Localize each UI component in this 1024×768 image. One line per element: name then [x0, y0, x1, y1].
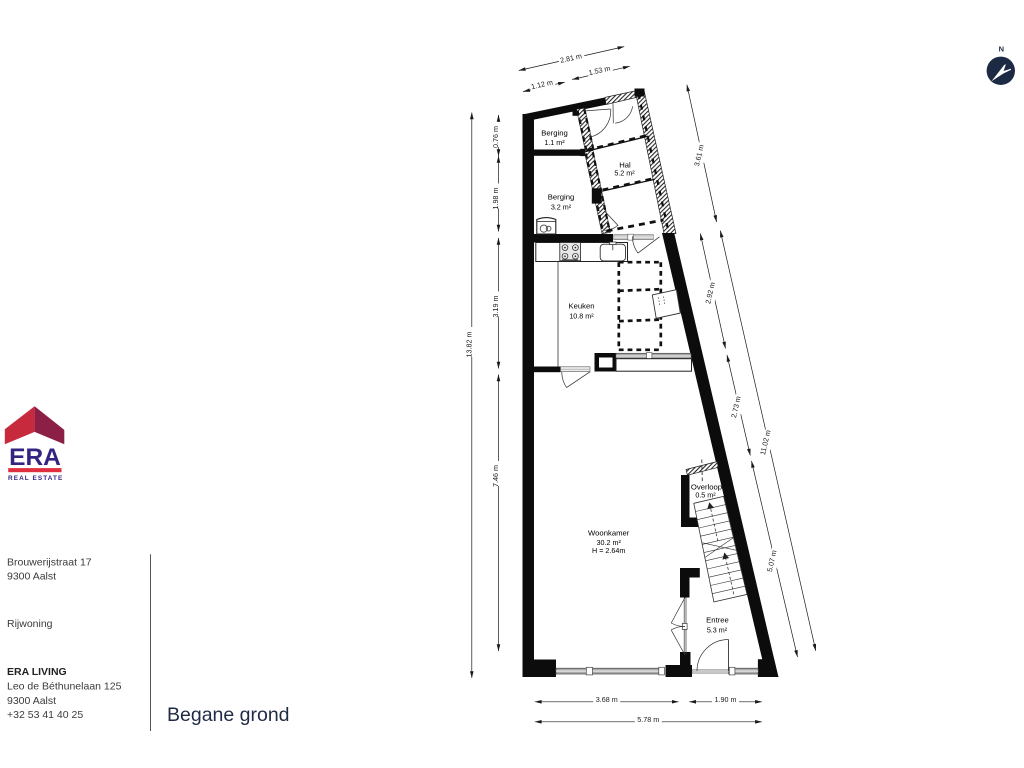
- svg-text:9300 Aalst: 9300 Aalst: [7, 695, 56, 707]
- svg-text:Rijwoning: Rijwoning: [7, 618, 53, 630]
- svg-text:H = 2.64m: H = 2.64m: [592, 546, 625, 555]
- svg-text:Woonkamer: Woonkamer: [588, 529, 630, 538]
- svg-text:5.2 m²: 5.2 m²: [614, 169, 635, 178]
- svg-text:13.82 m: 13.82 m: [464, 332, 473, 358]
- svg-text:+32 53 41 40 25: +32 53 41 40 25: [7, 709, 83, 721]
- svg-text:Brouwerijstraat 17: Brouwerijstraat 17: [7, 557, 92, 569]
- svg-text:9300 Aalst: 9300 Aalst: [7, 570, 56, 582]
- svg-text:N: N: [999, 45, 1004, 54]
- svg-text:Berging: Berging: [548, 193, 575, 202]
- svg-text:Entree: Entree: [706, 616, 729, 625]
- svg-text:10.8 m²: 10.8 m²: [569, 312, 594, 321]
- svg-text:7.46 m: 7.46 m: [491, 465, 500, 487]
- svg-text:1.90 m: 1.90 m: [715, 695, 737, 704]
- svg-text:5.78 m: 5.78 m: [637, 715, 659, 724]
- svg-text:1.1 m²: 1.1 m²: [544, 138, 565, 147]
- svg-text:0.76 m: 0.76 m: [491, 126, 500, 148]
- svg-text:REAL ESTATE: REAL ESTATE: [8, 475, 63, 482]
- svg-text:3.2 m²: 3.2 m²: [551, 203, 572, 212]
- svg-text:5.3 m²: 5.3 m²: [707, 626, 728, 635]
- svg-text:Keuken: Keuken: [568, 302, 594, 311]
- svg-text:Begane grond: Begane grond: [167, 704, 290, 726]
- svg-text:ERA LIVING: ERA LIVING: [7, 666, 67, 678]
- svg-text:Berging: Berging: [541, 129, 568, 138]
- svg-text:ERA: ERA: [9, 444, 61, 471]
- svg-text:0.5 m²: 0.5 m²: [695, 491, 716, 500]
- svg-text:Leo de Béthunelaan 125: Leo de Béthunelaan 125: [7, 681, 122, 693]
- svg-text:1.98 m: 1.98 m: [491, 188, 500, 210]
- svg-text:3.19 m: 3.19 m: [491, 296, 500, 318]
- svg-text:3.68 m: 3.68 m: [596, 695, 618, 704]
